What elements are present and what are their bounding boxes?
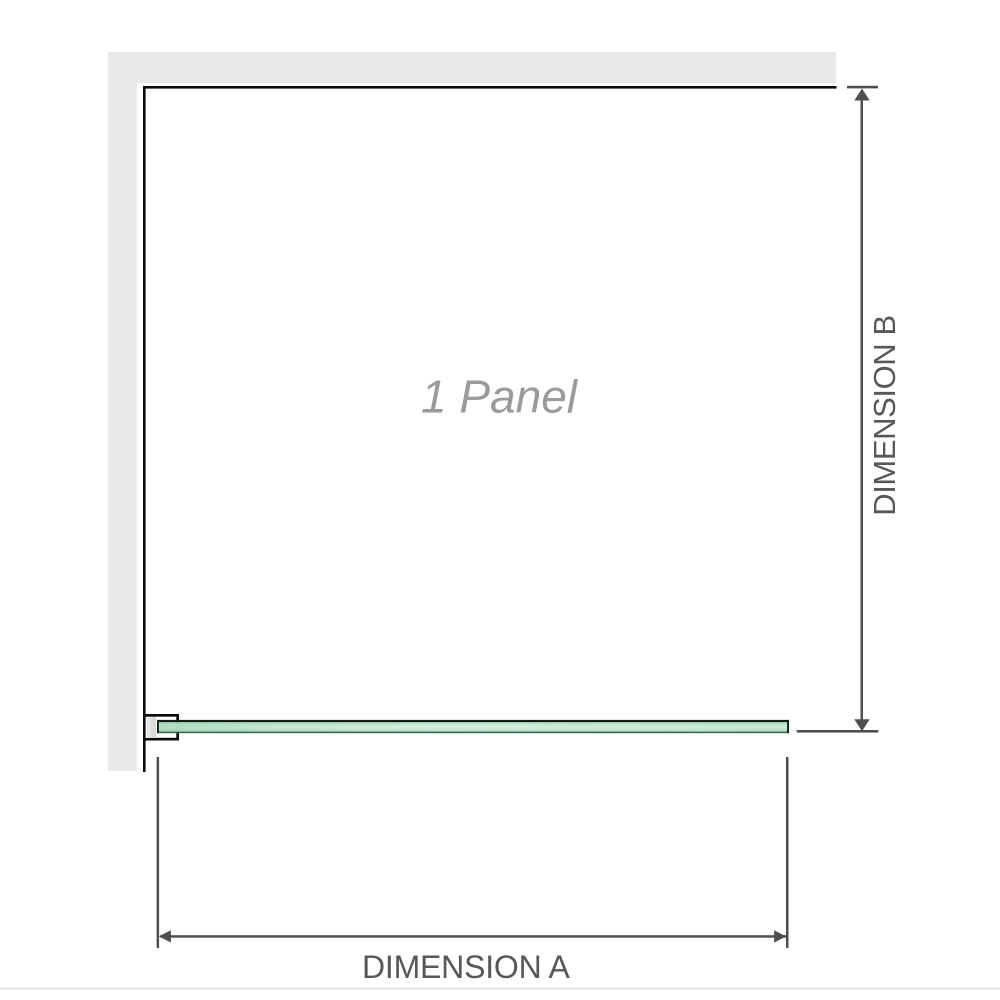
svg-text:DIMENSION B: DIMENSION B <box>867 315 902 516</box>
svg-text:1 Panel: 1 Panel <box>421 371 579 423</box>
svg-text:DIMENSION A: DIMENSION A <box>362 949 570 985</box>
